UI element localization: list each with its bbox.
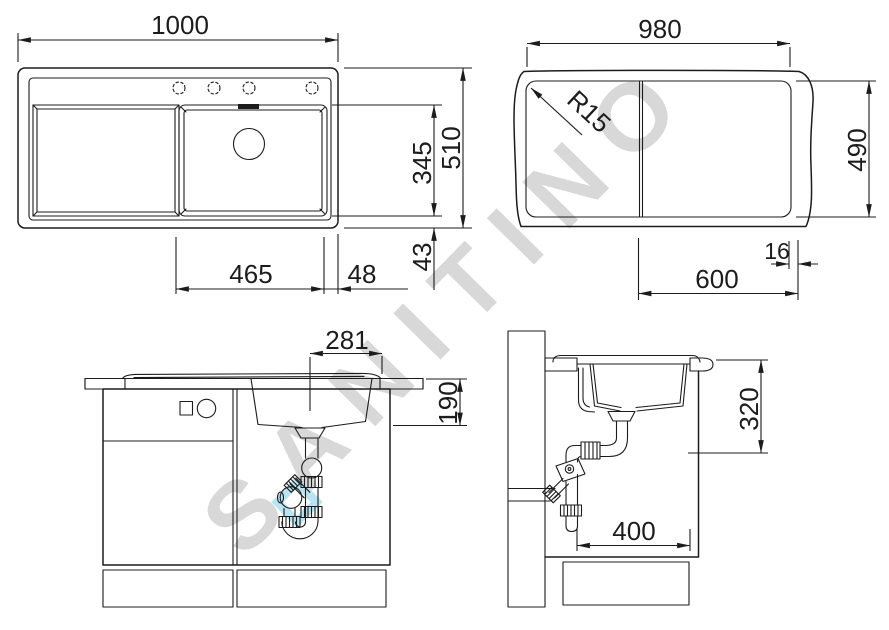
- sink-outline: [18, 68, 338, 228]
- dim-label: 43: [407, 243, 437, 272]
- bowl-side-section: [577, 364, 690, 421]
- plinth-right: [237, 570, 386, 607]
- dim-outlet-height: 320: [688, 360, 768, 453]
- appliance-button-round: [197, 399, 215, 417]
- dim-label: 400: [612, 516, 655, 546]
- watermark: SANITINO: [182, 36, 714, 575]
- dim-edge-offset: 16: [764, 238, 818, 300]
- trap-nut: [301, 507, 322, 518]
- dim-label: 490: [842, 128, 872, 171]
- dim-label: 465: [229, 259, 272, 289]
- wall-section: [508, 331, 545, 607]
- technical-drawing-canvas: SANITINO 100: [0, 0, 889, 630]
- dim-bowl-width: 465: [176, 237, 324, 294]
- drainboard: [33, 105, 179, 216]
- sink-inner-rim: [29, 78, 331, 220]
- bowl: [179, 104, 327, 216]
- worktop-hatch-left: [85, 379, 125, 390]
- dim-cutout-depth: 490: [796, 81, 876, 217]
- dim-label: 510: [436, 126, 466, 169]
- drain-flange: [608, 412, 635, 422]
- dim-label: 48: [348, 259, 377, 289]
- trap-nut: [581, 442, 600, 459]
- cabinet-side: [545, 371, 699, 605]
- plan-view: 1000 510 345 43 465 48: [18, 10, 472, 294]
- dim-overall-width: 1000: [18, 10, 338, 62]
- dim-label: 980: [638, 14, 681, 44]
- dim-label: 281: [325, 325, 368, 355]
- plinth-left: [103, 570, 233, 607]
- side-view: 320 400: [508, 331, 768, 607]
- watermark-text: SANITINO: [182, 36, 714, 575]
- dim-bowl-depth: 345: [332, 105, 442, 216]
- overflow-slot: [238, 104, 259, 109]
- technical-drawing-page: SANITINO 100: [0, 0, 889, 630]
- dim-label: 190: [433, 381, 463, 424]
- sink-rim-side: [553, 356, 700, 363]
- trap-nut: [561, 505, 582, 516]
- dim-trap-clearance: 400: [577, 516, 690, 551]
- tap-holes: [173, 82, 318, 94]
- dim-label: 320: [734, 387, 764, 430]
- dim-label: 345: [407, 141, 437, 184]
- appliance-button-square: [180, 402, 193, 416]
- overflow-channel: [579, 368, 595, 412]
- dim-label: 16: [764, 238, 790, 264]
- dim-label: 1000: [151, 10, 209, 40]
- plinth-side: [563, 562, 689, 605]
- drain-hole: [234, 129, 265, 160]
- dim-label: 600: [695, 264, 738, 294]
- trap-side: [508, 421, 628, 532]
